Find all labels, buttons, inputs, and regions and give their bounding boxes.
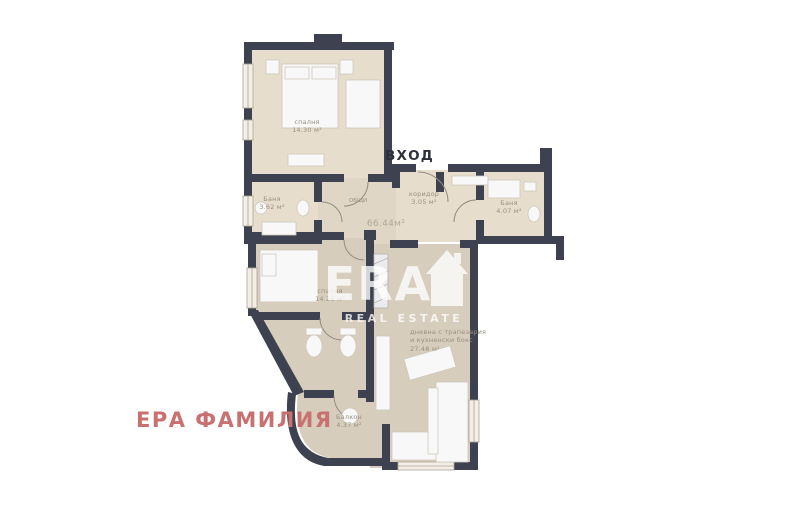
sofa [436, 382, 468, 462]
room-area-living: 27.48 м² [410, 345, 440, 353]
total-area-label: ОБЩИ [349, 198, 367, 204]
total-area-value: 66.44м² [367, 219, 405, 229]
room-label-living-2: и кухненски бокс [410, 336, 473, 344]
pillow [285, 67, 309, 79]
nightstand [340, 60, 353, 74]
room-label-balcony: Балкон [336, 413, 362, 421]
room-label-corridor: коридор [409, 190, 439, 198]
toilet [297, 200, 309, 216]
dresser [288, 154, 324, 166]
room-area-bedroom-top: 14.30 м² [292, 126, 322, 134]
room-label-bath-right: Баня [500, 199, 517, 207]
room-area-bath-left: 3.62 м² [259, 203, 285, 211]
brand-label: ЕРА ФАМИЛИЯ [136, 408, 333, 432]
sink [524, 182, 536, 191]
pillow [262, 254, 276, 276]
wardrobe [346, 80, 380, 128]
toilet-tank [306, 328, 322, 335]
entrance-label: ВХОД [385, 148, 434, 164]
toilet [528, 206, 540, 222]
room-label-bath-left: Баня [263, 195, 280, 203]
room-area-balcony: 4.37 м² [336, 421, 362, 429]
sink-cabinet [340, 328, 356, 335]
room-label-living-1: дневна с трапезария [410, 328, 486, 336]
room-area-bath-right: 4.07 м² [496, 207, 522, 215]
room-area-corridor: 3.05 м² [411, 198, 437, 206]
bathtub [262, 222, 296, 235]
watermark: ERA REAL ESTATE [324, 250, 468, 325]
shower [488, 180, 520, 198]
toilet [306, 335, 322, 357]
room-label-bedroom-top: спалня [294, 118, 319, 126]
watermark-text: ERA [324, 257, 432, 311]
floorplan: спалня 14.30 м² Баня 3.62 м² коридор 3.0… [0, 0, 800, 517]
watermark-subtext: REAL ESTATE [345, 312, 464, 325]
sink [340, 335, 356, 357]
pillow [312, 67, 336, 79]
hall-cabinet [452, 176, 488, 185]
floorplan-canvas: спалня 14.30 м² Баня 3.62 м² коридор 3.0… [0, 0, 800, 517]
sofa-cushion [428, 388, 438, 454]
nightstand [266, 60, 279, 74]
kitchen-counter [376, 336, 390, 410]
